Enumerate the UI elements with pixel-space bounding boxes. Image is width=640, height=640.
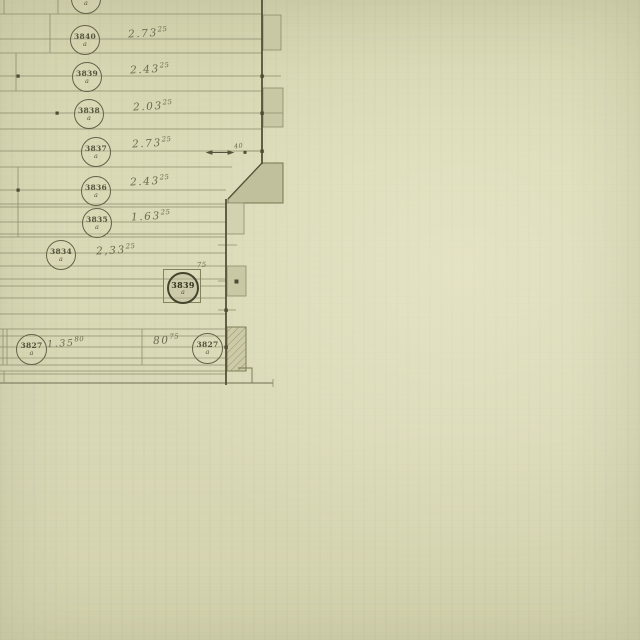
part-suffix: a xyxy=(94,192,98,199)
part-suffix: a xyxy=(181,289,185,296)
measurement-3839-boxed-sup: 75 xyxy=(197,261,207,273)
part-label-3835: 3835 a xyxy=(82,208,112,238)
measurement-3840: 2.7325 xyxy=(128,25,168,41)
part-suffix: a xyxy=(87,115,91,122)
part-label-3834: 3834 a xyxy=(46,240,76,270)
measurement-3838: 2.0325 xyxy=(133,98,173,114)
measurement-3827-right: 8075 xyxy=(153,332,180,347)
part-suffix: a xyxy=(95,224,99,231)
part-label-3836: 3836 a xyxy=(81,176,111,206)
part-label-3827-right: 3827 a xyxy=(192,333,223,364)
measurement-3834: 2,3325 xyxy=(96,242,136,258)
part-suffix: a xyxy=(206,349,210,356)
part-label-3839: 3839 a xyxy=(72,62,102,92)
part-label-3838: 3838 a xyxy=(74,99,104,129)
part-suffix: a xyxy=(59,256,63,263)
measurement-3839: 2.4325 xyxy=(130,61,170,77)
scanned-drawing-sheet: 3841 a 3840 a 3839 a 3838 a 3837 a 3836 … xyxy=(0,0,640,640)
dimension-40-label: 40 xyxy=(234,142,244,151)
part-label-3827-left: 3827 a xyxy=(16,334,47,365)
measurement-3837: 2.7325 xyxy=(132,135,172,151)
part-suffix: a xyxy=(94,153,98,160)
measurement-3835: 1.6325 xyxy=(131,208,171,224)
part-label-3839-boxed: 3839 a xyxy=(167,272,199,304)
part-suffix: a xyxy=(84,0,88,7)
drawing-linework xyxy=(0,0,640,640)
part-suffix: a xyxy=(83,41,87,48)
measurement-3836: 2.4325 xyxy=(130,173,170,189)
measurement-3827-left: 1.3580 xyxy=(47,335,85,350)
part-suffix: a xyxy=(30,350,34,357)
part-label-3840: 3840 a xyxy=(70,25,100,55)
part-label-3837: 3837 a xyxy=(81,137,111,167)
part-suffix: a xyxy=(85,78,89,85)
masonry-blocks xyxy=(226,15,283,383)
